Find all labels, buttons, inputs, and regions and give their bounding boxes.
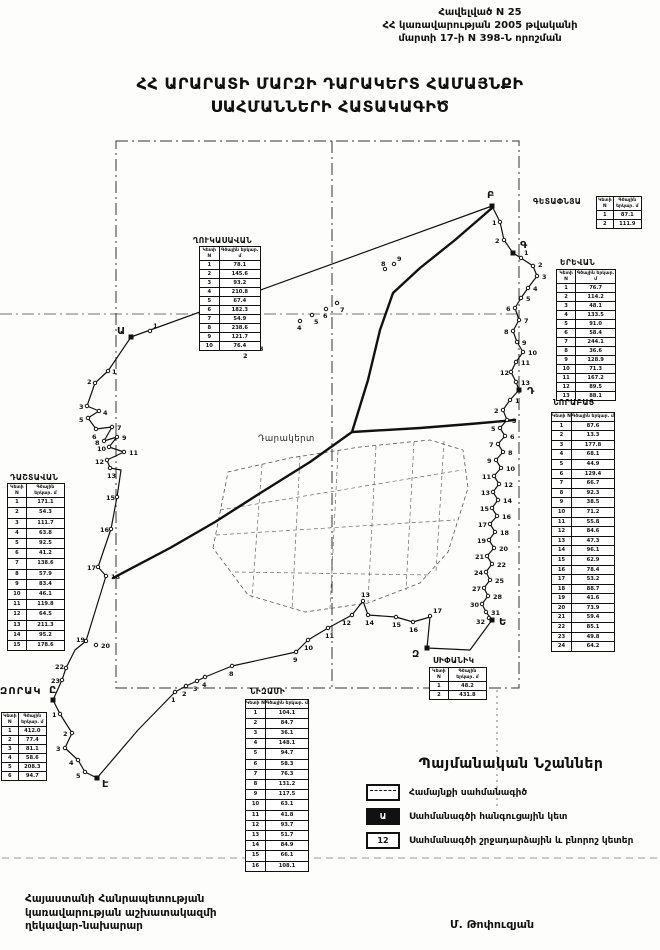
table-cell: 10 — [557, 365, 576, 374]
legend-item-boundary-line: Համայնքի սահմանագիծ — [366, 784, 656, 801]
table-title-nizami: ՆԻԶԱՄԻ — [250, 687, 285, 696]
table-cell: 41.2 — [26, 549, 64, 559]
svg-text:31: 31 — [491, 609, 501, 617]
table-row: 284.7 — [246, 718, 309, 728]
table-cell: 64.5 — [26, 610, 64, 620]
table-row: 766.7 — [552, 479, 615, 489]
table-title-ghukasavan: ՂՈՒԿԱՍԱՎԱՆ — [193, 236, 252, 245]
table-column-header: Կետի N — [8, 484, 27, 498]
table-row: 1678.4 — [552, 565, 615, 575]
table-row: 892.3 — [552, 488, 615, 498]
svg-text:27: 27 — [472, 585, 481, 593]
table-cell: 58.6 — [18, 754, 46, 763]
table-row: 15178.6 — [8, 641, 65, 651]
table-row: 176.7 — [557, 284, 616, 293]
table-row: 11167.2 — [557, 374, 616, 383]
table-cell: 6 — [2, 772, 19, 781]
svg-text:1: 1 — [171, 696, 176, 704]
table-cell: 22 — [552, 623, 572, 633]
svg-text:20: 20 — [499, 545, 509, 553]
table-cell: 46.1 — [26, 590, 64, 600]
table-row: 3111.7 — [8, 518, 65, 528]
svg-text:18: 18 — [111, 573, 121, 581]
svg-text:Բ: Բ — [487, 190, 494, 201]
table-cell: 9 — [557, 356, 576, 365]
table-cell: 23 — [552, 632, 572, 642]
boundary-length-table: Կետի NԳծային երկար. մ1412.0277.4381.1458… — [1, 712, 47, 781]
table-cell: 78.1 — [219, 261, 260, 270]
table-cell: 129.4 — [571, 469, 614, 479]
table-cell: 4 — [2, 754, 19, 763]
svg-text:28: 28 — [493, 593, 503, 601]
table-cell: 2 — [8, 508, 27, 518]
svg-text:15: 15 — [392, 621, 402, 629]
table-row: 1289.5 — [557, 383, 616, 392]
table-cell: 11 — [8, 600, 27, 610]
svg-text:18: 18 — [500, 529, 510, 537]
table-cell: 24 — [552, 642, 572, 652]
table-row: 1941.6 — [552, 594, 615, 604]
svg-text:Զ: Զ — [412, 649, 419, 660]
svg-text:Դարակերտ: Դարակերտ — [258, 434, 315, 444]
svg-text:17: 17 — [478, 521, 487, 529]
table-row: 148.2 — [430, 682, 487, 691]
table-cell: 117.5 — [265, 790, 308, 800]
page-title-line1: ՀՀ ԱՐԱՐԱՏԻ ՄԱՐԶԻ ԴԱՐԱԿԵՐՏ ՀԱՄԱՅՆՔԻ — [0, 72, 660, 95]
table-cell: 13 — [8, 620, 27, 630]
table-cell: 11 — [246, 810, 266, 820]
svg-text:7: 7 — [117, 424, 122, 432]
table-row: 1155.8 — [552, 517, 615, 527]
table-cell: 78.4 — [571, 565, 614, 575]
table-cell: 2 — [2, 736, 19, 745]
table-cell: 1 — [8, 498, 27, 508]
svg-text:5: 5 — [314, 318, 319, 326]
table-cell: 83.4 — [26, 579, 64, 589]
table-cell: 13 — [246, 831, 266, 841]
table-cell: 6 — [246, 759, 266, 769]
table-cell: 8 — [246, 780, 266, 790]
table-cell: 47.3 — [571, 536, 614, 546]
table-cell: 128.9 — [576, 356, 616, 365]
svg-text:1: 1 — [52, 711, 57, 719]
table-row: 776.3 — [246, 769, 309, 779]
svg-text:Ա: Ա — [117, 326, 125, 337]
table-cell: 58.4 — [576, 329, 616, 338]
table-cell: 54.9 — [219, 315, 260, 324]
table-cell: 4 — [246, 739, 266, 749]
table-cell: 3 — [2, 745, 19, 754]
svg-text:5: 5 — [491, 425, 496, 433]
table-cell: 54.3 — [26, 508, 64, 518]
svg-text:Է: Է — [102, 779, 109, 790]
svg-text:6: 6 — [323, 312, 328, 320]
table-cell: 3 — [246, 729, 266, 739]
settlement-blocks — [213, 440, 468, 612]
table-row: 9121.7 — [200, 333, 261, 342]
table-row: 4133.5 — [557, 311, 616, 320]
svg-text:10: 10 — [528, 349, 538, 357]
table-cell: 66.7 — [571, 479, 614, 489]
table-title-yerevan: ԵՐԵՎԱՆ — [560, 258, 595, 267]
table-cell: 7 — [552, 479, 572, 489]
table-row: 458.6 — [2, 754, 47, 763]
svg-text:2: 2 — [494, 407, 499, 415]
table-row: 463.8 — [8, 528, 65, 538]
table-cell: 7 — [246, 769, 266, 779]
table-row: 544.9 — [552, 459, 615, 469]
issuing-authority: Հայաստանի Հանրապետության կառավարության ա… — [25, 893, 217, 934]
svg-text:12: 12 — [342, 619, 351, 627]
svg-text:Ե: Ե — [499, 617, 506, 628]
table-cell: 238.6 — [219, 324, 260, 333]
table-zorak: Կետի NԳծային երկար. մ1412.0277.4381.1458… — [1, 712, 47, 781]
decree-date: մարտի 17-ի N 398-Ն որոշման — [320, 32, 640, 45]
table-cell: 57.9 — [26, 569, 64, 579]
table-cell: 88.7 — [571, 584, 614, 594]
svg-text:22: 22 — [497, 561, 506, 569]
table-row: 2111.9 — [597, 220, 642, 229]
table-column-header: Կետի N — [597, 197, 614, 211]
svg-text:4: 4 — [533, 285, 538, 293]
table-cell: 85.1 — [571, 623, 614, 633]
table-row: 591.0 — [557, 320, 616, 329]
legend-item-turning-point: 12 Սահմանագծի շրջադարձային և բնորոշ կետե… — [366, 832, 656, 849]
svg-text:4: 4 — [202, 681, 207, 689]
boundary-length-table: Կետի NԳծային երկար. մ1104.1284.7336.1414… — [245, 699, 309, 872]
table-cell: 63.8 — [26, 528, 64, 538]
table-row: 381.1 — [2, 745, 47, 754]
table-row: 2114.2 — [557, 293, 616, 302]
svg-text:7: 7 — [524, 317, 529, 325]
table-cell: 15 — [552, 555, 572, 565]
table-row: 1412.0 — [2, 727, 47, 736]
boundary-length-table: Կետի NԳծային երկար. մ148.22431.8 — [429, 667, 487, 700]
table-cell: 7 — [200, 315, 220, 324]
table-cell: 95.2 — [26, 630, 64, 640]
table-column-header: Գծային երկար. մ — [26, 484, 64, 498]
table-column-header: Գծային երկար. մ — [448, 668, 486, 682]
table-cell: 96.1 — [571, 546, 614, 556]
table-cell: 111.9 — [613, 220, 641, 229]
svg-text:1: 1 — [492, 219, 497, 227]
table-cell: 93.7 — [265, 820, 308, 830]
table-cell: 58.3 — [265, 759, 308, 769]
table-cell: 1 — [430, 682, 449, 691]
table-title-zorak: ԶՈՐԱԿ — [0, 686, 42, 697]
svg-text:7: 7 — [340, 306, 345, 314]
table-cell: 76.4 — [219, 342, 260, 351]
table-row: 836.6 — [557, 347, 616, 356]
table-cell: 36.6 — [576, 347, 616, 356]
boundary-line-symbol — [366, 784, 400, 801]
svg-text:32: 32 — [476, 618, 485, 626]
table-cell: 211.3 — [26, 620, 64, 630]
table-cell: 104.1 — [265, 708, 308, 718]
svg-text:20: 20 — [101, 642, 111, 650]
table-row: 1888.7 — [552, 584, 615, 594]
svg-text:2: 2 — [63, 730, 68, 738]
svg-text:30: 30 — [470, 601, 480, 609]
table-cell: 2 — [557, 293, 576, 302]
svg-text:9: 9 — [487, 457, 492, 465]
table-sipanik: Կետի NԳծային երկար. մ148.22431.8 — [429, 667, 487, 700]
table-row: 1071.2 — [552, 507, 615, 517]
table-cell: 84.9 — [265, 841, 308, 851]
svg-text:13: 13 — [107, 472, 116, 480]
table-row: 187.6 — [552, 421, 615, 431]
svg-text:5: 5 — [76, 772, 81, 780]
table-cell: 3 — [200, 279, 220, 288]
table-cell: 412.0 — [18, 727, 46, 736]
table-cell: 133.5 — [576, 311, 616, 320]
table-row: 1284.6 — [552, 527, 615, 537]
table-cell: 20 — [552, 603, 572, 613]
table-cell: 92.5 — [26, 539, 64, 549]
table-cell: 5 — [557, 320, 576, 329]
table-row: 277.4 — [2, 736, 47, 745]
table-column-header: Կետի N — [557, 270, 576, 284]
legend-item-label: Սահմանագծի հանգուցային կետ — [409, 812, 567, 822]
table-cell: 13.3 — [571, 431, 614, 441]
table-cell: 121.7 — [219, 333, 260, 342]
table-cell: 68.1 — [571, 450, 614, 460]
table-row: 1495.2 — [8, 630, 65, 640]
table-row: 567.4 — [200, 297, 261, 306]
table-cell: 2 — [552, 431, 572, 441]
table-cell: 73.9 — [571, 603, 614, 613]
table-cell: 5 — [552, 459, 572, 469]
svg-text:25: 25 — [495, 577, 505, 585]
page-title-line2: ՍԱՀՄԱՆՆԵՐԻ ՀԱՏԱԿԱԳԻԾ — [0, 95, 660, 118]
table-cell: 91.0 — [576, 320, 616, 329]
table-row: 11119.8 — [8, 600, 65, 610]
table-cell: 15 — [8, 641, 27, 651]
table-cell: 59.4 — [571, 613, 614, 623]
table-cell: 84.7 — [265, 718, 308, 728]
boundary-length-table: Կետի NԳծային երկար. մ1171.1254.33111.746… — [7, 483, 65, 651]
svg-text:9: 9 — [522, 339, 527, 347]
signature-name: Մ. Թոփուզյան — [450, 918, 534, 931]
table-row: 187.1 — [597, 211, 642, 220]
table-cell: 3 — [552, 440, 572, 450]
table-row: 6182.3 — [200, 306, 261, 315]
table-cell: 2 — [430, 691, 449, 700]
table-row: 2073.9 — [552, 603, 615, 613]
table-row: 178.1 — [200, 261, 261, 270]
table-row: 594.7 — [246, 749, 309, 759]
table-row: 7244.1 — [557, 338, 616, 347]
boundary-length-table: Կետի NԳծային երկար. մ178.12145.6393.2421… — [199, 246, 261, 351]
table-cell: 77.4 — [18, 736, 46, 745]
table-row: 2349.8 — [552, 632, 615, 642]
svg-text:8: 8 — [508, 449, 513, 457]
table-cell: 1 — [552, 421, 572, 431]
table-row: 348.1 — [557, 302, 616, 311]
table-column-header: Կետի N — [246, 700, 266, 709]
table-cell: 12 — [557, 383, 576, 392]
table-cell: 5 — [2, 763, 19, 772]
table-row: 468.1 — [552, 450, 615, 460]
table-cell: 94.7 — [18, 772, 46, 781]
table-column-header: Գծային երկար. մ — [18, 713, 46, 727]
table-cell: 18 — [552, 584, 572, 594]
table-cell: 3 — [8, 518, 27, 528]
table-row: 938.5 — [552, 498, 615, 508]
table-cell: 2 — [597, 220, 614, 229]
table-cell: 71.2 — [571, 507, 614, 517]
authority-line2: կառավարության աշխատակազմի — [25, 907, 217, 921]
table-column-header: Գծային երկար. մ — [571, 413, 614, 422]
table-dashtavan: Կետի NԳծային երկար. մ1171.1254.33111.746… — [7, 483, 65, 651]
table-cell: 138.6 — [26, 559, 64, 569]
table-row: 1264.5 — [8, 610, 65, 620]
table-column-header: Գծային երկար. մ — [265, 700, 308, 709]
table-cell: 41.8 — [265, 810, 308, 820]
svg-text:13: 13 — [361, 591, 370, 599]
svg-text:5: 5 — [526, 295, 531, 303]
table-row: 6129.4 — [552, 469, 615, 479]
table-column-header: Կետի N — [552, 413, 572, 422]
table-column-header: Գծային երկար. մ — [576, 270, 616, 284]
boundary-length-table: Կետի NԳծային երկար. մ187.6213.33177.8468… — [551, 412, 615, 652]
decree-line: ՀՀ կառավարության 2005 թվականի — [320, 19, 640, 32]
table-cell: 92.3 — [571, 488, 614, 498]
svg-text:3: 3 — [193, 685, 198, 693]
table-cell: 10 — [8, 590, 27, 600]
svg-text:21: 21 — [475, 553, 485, 561]
table-cell: 177.8 — [571, 440, 614, 450]
table-row: 1351.7 — [246, 831, 309, 841]
table-column-header: Կետի N — [2, 713, 19, 727]
svg-text:2: 2 — [538, 261, 543, 269]
table-cell: 4 — [552, 450, 572, 460]
table-title-sipanik: ՍԻՓԱՆԻԿ — [433, 656, 474, 665]
table-row: 1566.1 — [246, 851, 309, 861]
table-cell: 89.5 — [576, 383, 616, 392]
svg-text:6: 6 — [506, 305, 511, 313]
table-cell: 210.8 — [219, 288, 260, 297]
svg-text:10: 10 — [506, 465, 516, 473]
table-cell: 36.1 — [265, 729, 308, 739]
table-cell: 5 — [8, 539, 27, 549]
table-row: 857.9 — [8, 569, 65, 579]
svg-text:8: 8 — [504, 328, 509, 336]
table-cell: 13 — [552, 536, 572, 546]
page-title: ՀՀ ԱՐԱՐԱՏԻ ՄԱՐԶԻ ԴԱՐԱԿԵՐՏ ՀԱՄԱՅՆՔԻ ՍԱՀՄԱ… — [0, 72, 660, 118]
svg-text:11: 11 — [325, 632, 335, 640]
svg-text:2: 2 — [182, 690, 187, 698]
table-cell: 9 — [200, 333, 220, 342]
legend-item-label: Սահմանագծի շրջադարձային և բնորոշ կետեր — [409, 836, 633, 846]
table-row: 1171.1 — [8, 498, 65, 508]
svg-text:1: 1 — [153, 322, 158, 330]
table-cell: 53.2 — [571, 575, 614, 585]
table-cell: 51.7 — [265, 831, 308, 841]
turning-point-symbol: 12 — [366, 832, 400, 849]
svg-text:19: 19 — [477, 537, 487, 545]
svg-text:14: 14 — [365, 619, 375, 627]
table-cell: 111.7 — [26, 518, 64, 528]
table-row: 254.3 — [8, 508, 65, 518]
svg-text:1: 1 — [112, 368, 117, 376]
table-cell: 145.6 — [219, 270, 260, 279]
svg-text:3: 3 — [512, 417, 517, 425]
svg-text:14: 14 — [503, 497, 513, 505]
table-row: 694.7 — [2, 772, 47, 781]
table-row: 1293.7 — [246, 820, 309, 830]
table-cell: 2 — [246, 718, 266, 728]
svg-text:3: 3 — [56, 745, 61, 753]
table-cell: 8 — [552, 488, 572, 498]
table-cell: 76.3 — [265, 769, 308, 779]
svg-text:8: 8 — [229, 670, 234, 678]
authority-line1: Հայաստանի Հանրապետության — [25, 893, 217, 907]
table-cell: 8 — [8, 569, 27, 579]
svg-text:11: 11 — [129, 449, 139, 457]
table-row: 16108.1 — [246, 861, 309, 871]
table-cell: 119.8 — [26, 600, 64, 610]
table-row: 9117.5 — [246, 790, 309, 800]
svg-text:7: 7 — [489, 441, 494, 449]
svg-text:24: 24 — [474, 569, 484, 577]
svg-text:1: 1 — [515, 397, 520, 405]
table-row: 336.1 — [246, 729, 309, 739]
legend: Պայմանական Նշաններ Համայնքի սահմանագիծ Ա… — [366, 756, 656, 856]
table-cell: 48.1 — [576, 302, 616, 311]
table-cell: 12 — [8, 610, 27, 620]
table-row: 9128.9 — [557, 356, 616, 365]
table-cell: 431.8 — [448, 691, 486, 700]
main-road — [113, 208, 515, 578]
svg-text:15: 15 — [106, 494, 116, 502]
table-row: 1071.3 — [557, 365, 616, 374]
table-row: 1347.3 — [552, 536, 615, 546]
table-row: 7138.6 — [8, 559, 65, 569]
svg-text:16: 16 — [502, 513, 512, 521]
table-cell: 114.2 — [576, 293, 616, 302]
table-cell: 49.8 — [571, 632, 614, 642]
svg-text:10: 10 — [97, 445, 107, 453]
table-row: 8131.2 — [246, 780, 309, 790]
table-cell: 6 — [200, 306, 220, 315]
table-cell: 10 — [200, 342, 220, 351]
table-cell: 44.9 — [571, 459, 614, 469]
table-column-header: Գծային երկար. մ — [219, 247, 260, 261]
table-row: 13211.3 — [8, 620, 65, 630]
table-cell: 2 — [200, 270, 220, 279]
scanned-map-sheet: 1234567891212345678910111213123567891011… — [0, 0, 660, 950]
table-row: 213.3 — [552, 431, 615, 441]
table-ghukasavan: Կետի NԳծային երկար. մ178.12145.6393.2421… — [199, 246, 261, 351]
boundary-length-table: Կետի NԳծային երկար. մ187.12111.9 — [596, 196, 642, 229]
svg-text:3: 3 — [79, 403, 84, 411]
table-cell: 81.1 — [18, 745, 46, 754]
table-cell: 67.4 — [219, 297, 260, 306]
table-row: 658.4 — [557, 329, 616, 338]
table-cell: 12 — [552, 527, 572, 537]
table-getapnya: Կետի NԳծային երկար. մ187.12111.9 — [596, 196, 642, 229]
table-cell: 9 — [552, 498, 572, 508]
svg-text:2: 2 — [495, 237, 500, 245]
table-cell: 84.6 — [571, 527, 614, 537]
table-cell: 14 — [8, 630, 27, 640]
table-cell: 3 — [557, 302, 576, 311]
legend-title: Պայմանական Նշաններ — [366, 756, 656, 772]
svg-text:9: 9 — [397, 255, 402, 263]
table-row: 4148.1 — [246, 739, 309, 749]
table-cell: 38.5 — [571, 498, 614, 508]
